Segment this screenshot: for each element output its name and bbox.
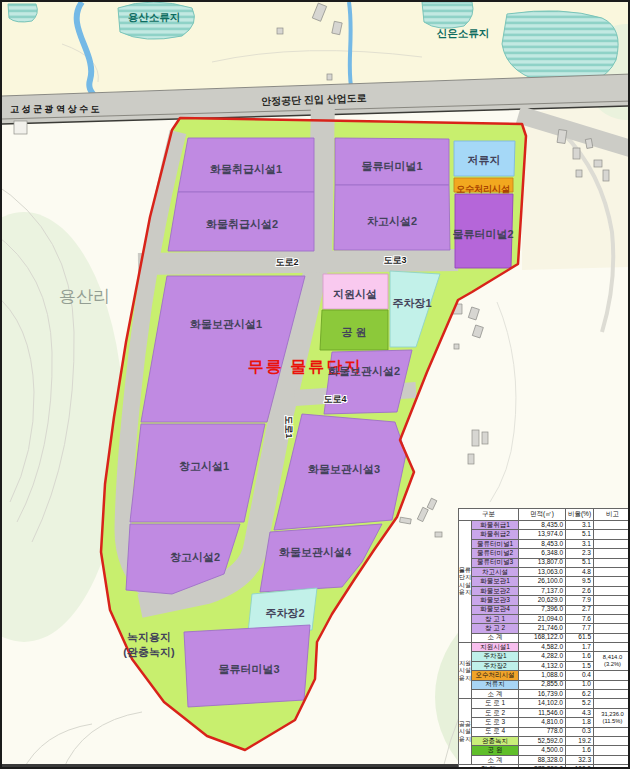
table-row: 도 로 211,546.04.331,236.0 (11.5%)	[459, 708, 630, 717]
table-row: 공공시설용지도 로 114,102.05.2	[459, 699, 630, 708]
table-row: 창 고 221,746.07.7	[459, 624, 630, 633]
row-ratio: 32.3	[566, 755, 594, 764]
table-row: 지원시설용지지원시설14,582.01.7	[459, 643, 630, 652]
row-ratio: 2.6	[566, 586, 594, 595]
table-row: 화물보관47,396.02.7	[459, 605, 630, 614]
row-remark-empty	[594, 521, 630, 530]
row-ratio: 61.5	[566, 633, 594, 642]
row-area: 1,088.0	[519, 671, 566, 680]
label-sewage-treatment: 오수처리시설	[456, 184, 510, 194]
row-remark-empty	[594, 624, 630, 633]
label-garage-2: 차고시설2	[367, 215, 417, 227]
group-label-1: 지원시설용지	[459, 643, 472, 699]
row-remark-empty	[594, 680, 630, 689]
row-ratio: 7.6	[566, 614, 594, 623]
row-area: 6,348.0	[519, 549, 566, 558]
row-area: 13,807.0	[519, 558, 566, 567]
table-row: 물류터미널313,807.05.1	[459, 558, 630, 567]
row-label: 화물취급2	[472, 530, 519, 539]
row-label: 주차장2	[472, 661, 519, 670]
row-area: 8,435.0	[519, 521, 566, 530]
total-label: 합 계	[459, 765, 519, 769]
row-label: 소 계	[472, 690, 519, 699]
parcel-warehouse-1	[130, 424, 265, 522]
small-pond-shape	[8, 4, 37, 22]
row-area: 11,546.0	[519, 708, 566, 717]
row-label: 화물취급1	[472, 521, 519, 530]
row-ratio: 0.4	[566, 671, 594, 680]
label-park: 공 원	[341, 326, 366, 338]
label-road-1: 도로1	[284, 415, 294, 438]
row-area: 13,974.0	[519, 530, 566, 539]
row-remark-empty	[594, 671, 630, 680]
green-buffer-label-1: 녹지용지	[127, 631, 171, 643]
label-road-4: 도로4	[323, 394, 346, 404]
table-total-row: 합 계273,209.0100.0	[459, 765, 630, 769]
row-ratio: 4.3	[566, 708, 594, 717]
table-row: 공 원4,500.01.6	[459, 746, 630, 755]
table-row: 창 고 121,094.07.6	[459, 614, 630, 623]
row-label: 화물보관4	[472, 605, 519, 614]
row-label: 공 원	[472, 746, 519, 755]
table-row: 소 계168,122.061.5	[459, 633, 630, 642]
table-row: 화물보관320,629.07.9	[459, 596, 630, 605]
header-category: 구분	[459, 509, 519, 521]
row-ratio: 2.3	[566, 549, 594, 558]
row-remark-empty	[594, 567, 630, 576]
header-area: 면적(㎡)	[519, 509, 566, 521]
label-warehouse-1: 창고시설1	[179, 460, 229, 472]
row-ratio: 7.9	[566, 596, 594, 605]
label-logistics-terminal-1: 물류터미널1	[361, 160, 422, 172]
green-buffer-label-2: (완충녹지)	[123, 646, 175, 658]
row-ratio: 5.1	[566, 530, 594, 539]
row-ratio: 3.1	[566, 521, 594, 530]
group-label-0: 물류단지시설용지	[459, 521, 472, 643]
row-ratio: 6.2	[566, 690, 594, 699]
label-parking-1: 주차장1	[392, 297, 431, 309]
row-ratio: 4.8	[566, 567, 594, 576]
row-remark-empty	[594, 699, 630, 708]
row-label: 도 로 3	[472, 718, 519, 727]
row-remark-empty	[594, 558, 630, 567]
row-label: 화물보관2	[472, 586, 519, 595]
table-row: 저류지2,855.01.0	[459, 680, 630, 689]
row-remark-empty	[594, 596, 630, 605]
label-cargo-storage-4: 화물보관시설4	[279, 546, 352, 558]
row-area: 16,739.0	[519, 690, 566, 699]
row-ratio: 0.3	[566, 727, 594, 736]
row-remark-empty	[594, 549, 630, 558]
table-row: 주차장14,282.01.68,414.0 (3.2%)	[459, 652, 630, 661]
row-ratio: 7.7	[566, 624, 594, 633]
row-area: 26,100.0	[519, 577, 566, 586]
table-row: 오수처리시설1,088.00.4	[459, 671, 630, 680]
area-table: 구분면적(㎡)비율(%)비고물류단지시설용지화물취급18,435.03.1화물취…	[458, 508, 630, 769]
total-remark	[594, 765, 630, 769]
row-ratio: 1.6	[566, 652, 594, 661]
row-label: 물류터미널2	[472, 549, 519, 558]
row-remark-empty	[594, 736, 630, 745]
row-label: 물류터미널3	[472, 558, 519, 567]
row-label: 저류지	[472, 680, 519, 689]
table-row: 물류단지시설용지화물취급18,435.03.1	[459, 521, 630, 530]
label-cargo-handling-1: 화물취급시설1	[210, 163, 282, 175]
label-parking-2: 주차장2	[265, 607, 304, 619]
row-ratio: 1.7	[566, 643, 594, 652]
row-label: 소 계	[472, 633, 519, 642]
label-support-facility: 지원시설	[333, 288, 377, 300]
row-remark-empty	[594, 614, 630, 623]
row-remark-empty	[594, 633, 630, 642]
row-area: 4,282.0	[519, 652, 566, 661]
row-ratio: 1.5	[566, 661, 594, 670]
row-label: 소 계	[472, 755, 519, 764]
row-area: 778.0	[519, 727, 566, 736]
table-row: 도 로 4778.00.3	[459, 727, 630, 736]
row-remark-empty	[594, 530, 630, 539]
row-remark-empty	[594, 586, 630, 595]
row-area: 8,453.0	[519, 539, 566, 548]
row-area: 4,500.0	[519, 746, 566, 755]
label-logistics-terminal-2: 물류터미널2	[452, 228, 513, 240]
row-label: 물류터미널1	[472, 539, 519, 548]
row-area: 4,810.0	[519, 718, 566, 727]
image-bottom-bar	[2, 764, 460, 769]
row-label: 도 로 2	[472, 708, 519, 717]
row-label: 차고시설	[472, 567, 519, 576]
row-label: 오수처리시설	[472, 671, 519, 680]
row-remark-empty	[594, 605, 630, 614]
row-remark-empty	[594, 755, 630, 764]
table-row: 화물보관126,100.09.5	[459, 577, 630, 586]
row-ratio: 5.2	[566, 699, 594, 708]
label-road-3: 도로3	[383, 255, 406, 265]
total-area: 273,209.0	[519, 765, 566, 769]
row-area: 4,132.0	[519, 661, 566, 670]
row-label: 창 고 1	[472, 614, 519, 623]
table-row: 소 계88,328.032.3	[459, 755, 630, 764]
table-header-row: 구분면적(㎡)비율(%)비고	[459, 509, 630, 521]
table-row: 차고시설13,063.04.8	[459, 567, 630, 576]
row-label: 완충녹지	[472, 736, 519, 745]
row-remark-empty	[594, 643, 630, 652]
table-row: 소 계16,739.06.2	[459, 690, 630, 699]
row-ratio: 5.1	[566, 558, 594, 567]
row-label: 지원시설1	[472, 643, 519, 652]
row-ratio: 3.1	[566, 539, 594, 548]
label-cargo-handling-2: 화물취급시설2	[206, 218, 278, 230]
village-label: 용산리	[59, 287, 110, 306]
row-area: 168,122.0	[519, 633, 566, 642]
row-remark-empty	[594, 539, 630, 548]
row-remark-empty	[594, 690, 630, 699]
row-ratio: 19.2	[566, 736, 594, 745]
row-area: 7,137.0	[519, 586, 566, 595]
row-area: 2,855.0	[519, 680, 566, 689]
row-area: 21,746.0	[519, 624, 566, 633]
site-plan-screenshot: 용산소류지 신은소류지 고성군광역상수도 안정공단 진입 산업도로 용산리 무릉…	[0, 0, 630, 769]
row-remark-empty	[594, 727, 630, 736]
label-logistics-terminal-3: 물류터미널3	[218, 663, 279, 675]
row-area: 20,629.0	[519, 596, 566, 605]
table-row: 물류터미널26,348.02.3	[459, 549, 630, 558]
row-area: 7,396.0	[519, 605, 566, 614]
header-remark: 비고	[594, 509, 630, 521]
north-pond-shape	[422, 2, 473, 28]
row-ratio: 1.6	[566, 746, 594, 755]
row-area: 88,328.0	[519, 755, 566, 764]
table-row: 물류터미널18,453.03.1	[459, 539, 630, 548]
row-label: 도 로 1	[472, 699, 519, 708]
total-ratio: 100.0	[566, 765, 594, 769]
label-cargo-storage-2: 화물보관시설2	[328, 365, 400, 377]
label-cargo-storage-3: 화물보관시설3	[308, 463, 380, 475]
row-remark: 8,414.0 (3.2%)	[594, 652, 630, 671]
label-road-2: 도로2	[275, 257, 298, 267]
table-row: 화물취급213,974.05.1	[459, 530, 630, 539]
header-ratio: 비율(%)	[566, 509, 594, 521]
row-label: 주차장1	[472, 652, 519, 661]
row-remark-empty	[594, 577, 630, 586]
label-cargo-storage-1: 화물보관시설1	[190, 318, 262, 330]
row-area: 52,592.0	[519, 736, 566, 745]
row-ratio: 1.8	[566, 718, 594, 727]
row-remark-empty	[594, 746, 630, 755]
table-row: 완충녹지52,592.019.2	[459, 736, 630, 745]
row-ratio: 9.5	[566, 577, 594, 586]
group-label-2: 공공시설용지	[459, 699, 472, 765]
waterworks-label: 고성군광역상수도	[10, 104, 102, 114]
row-label: 화물보관3	[472, 596, 519, 605]
yongsan-pond-label: 용산소류지	[128, 11, 181, 23]
row-label: 도 로 4	[472, 727, 519, 736]
table-row: 화물보관27,137.02.6	[459, 586, 630, 595]
row-label: 화물보관1	[472, 577, 519, 586]
row-area: 4,582.0	[519, 643, 566, 652]
row-label: 창 고 2	[472, 624, 519, 633]
row-area: 13,063.0	[519, 567, 566, 576]
label-retention-pond: 저류지	[468, 154, 501, 166]
row-area: 14,102.0	[519, 699, 566, 708]
row-ratio: 2.7	[566, 605, 594, 614]
label-warehouse-2: 창고시설2	[170, 551, 220, 563]
row-remark: 31,236.0 (11.5%)	[594, 708, 630, 727]
row-area: 21,094.0	[519, 614, 566, 623]
sineun-pond-label: 신은소류지	[437, 27, 490, 39]
row-ratio: 1.0	[566, 680, 594, 689]
